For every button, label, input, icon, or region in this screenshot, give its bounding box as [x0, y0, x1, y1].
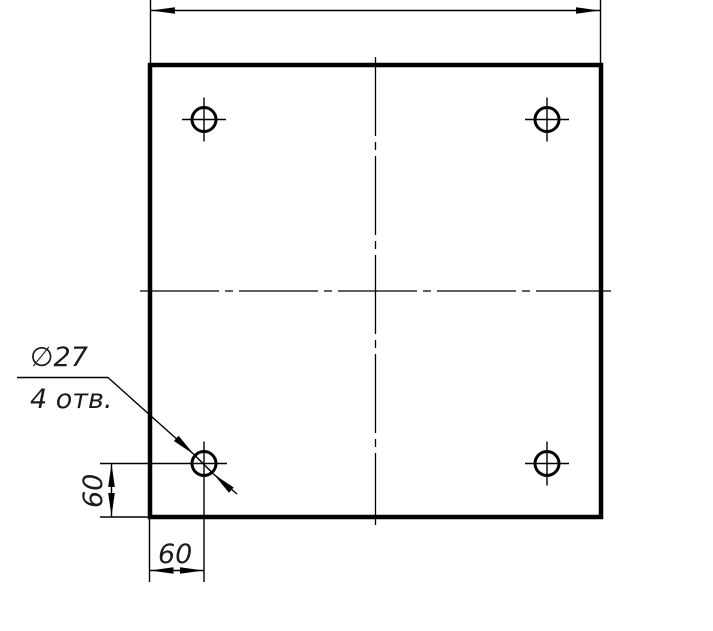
drawing-canvas: 60 60 ∅27 4 отв.: [0, 0, 713, 631]
dim-value-vertical: 60: [78, 474, 109, 508]
plate-drawing-svg: 60 60 ∅27 4 отв.: [0, 0, 713, 631]
dimension-overall-width: [150, 0, 601, 63]
dim-value-horizontal: 60: [158, 539, 192, 570]
callout-diameter-label: ∅27: [30, 342, 88, 373]
callout-count-label: 4 отв.: [30, 384, 113, 415]
arrowhead-top-right: [576, 7, 600, 14]
arrowhead-up: [108, 464, 115, 488]
dimension-hole-offset-horizontal: 60: [150, 519, 205, 582]
dimension-hole-offset-vertical: 60: [78, 464, 152, 518]
arrowhead-top-left: [151, 7, 175, 14]
arrowhead-down: [108, 493, 115, 517]
